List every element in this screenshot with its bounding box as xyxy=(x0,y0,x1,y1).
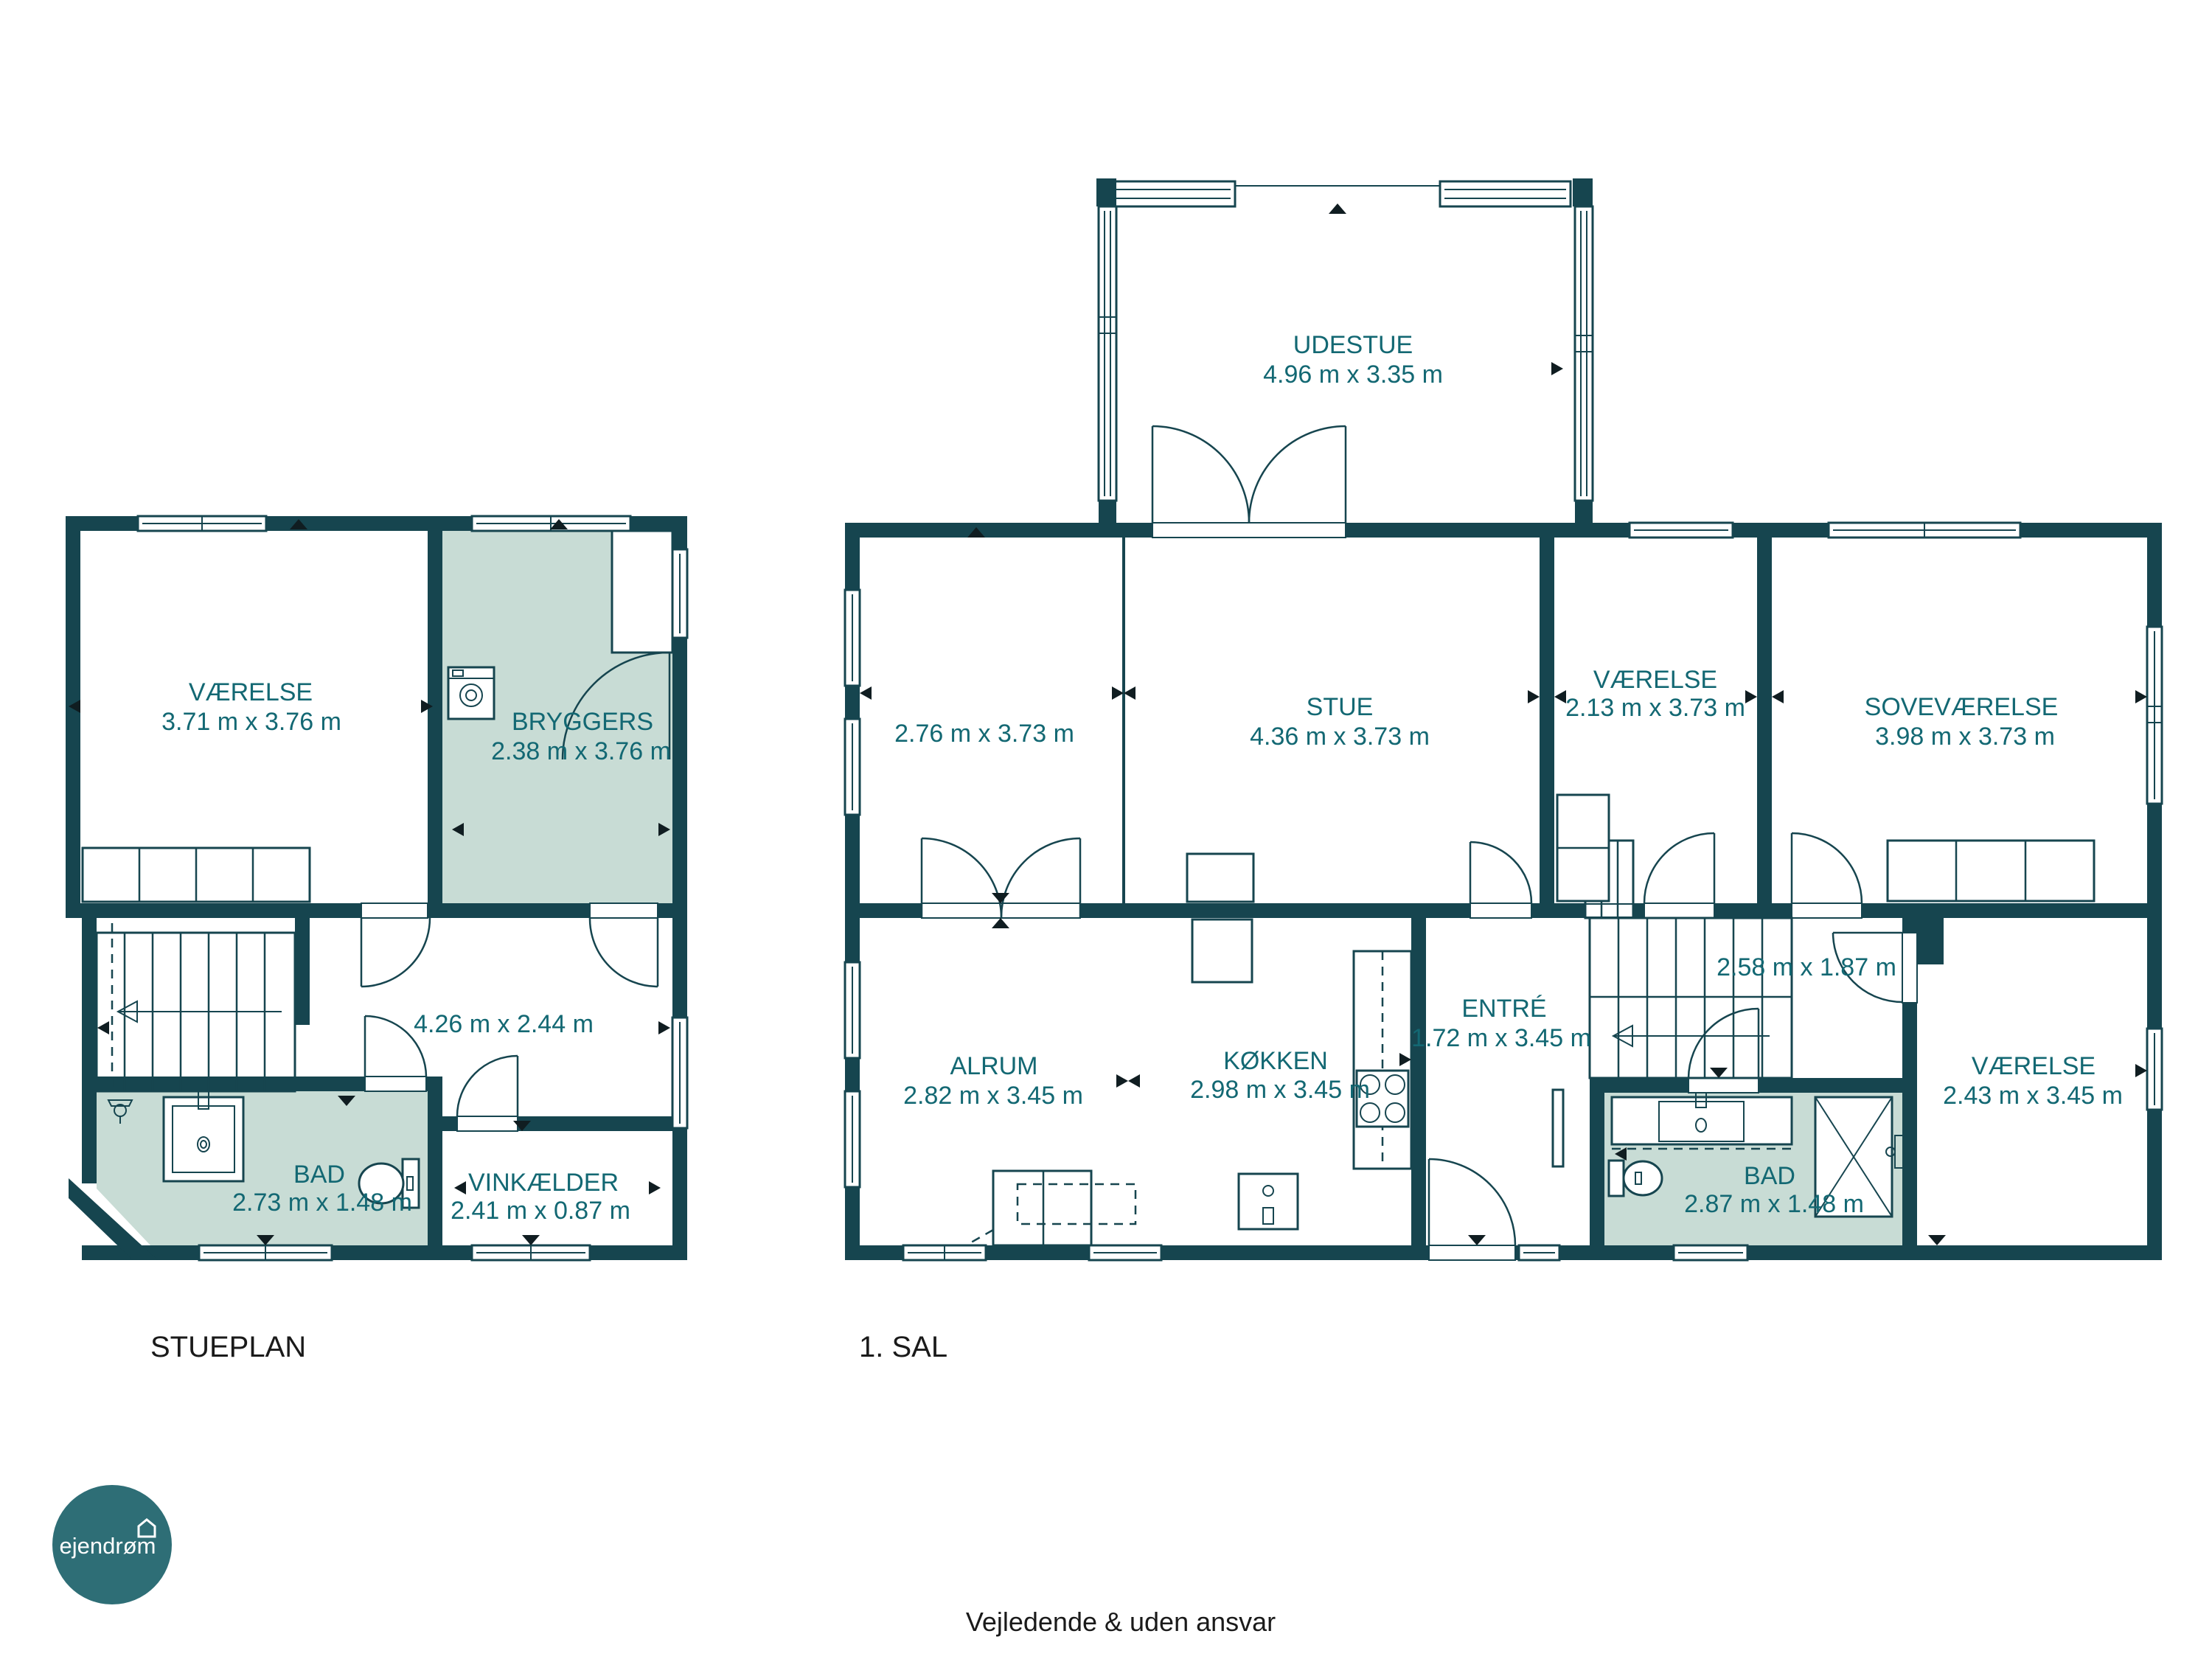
door-leaf-entre xyxy=(1553,1090,1563,1166)
toilet-icon xyxy=(1609,1161,1662,1196)
door-entry xyxy=(1429,1159,1515,1245)
window xyxy=(2147,1029,2162,1110)
window xyxy=(672,1018,687,1128)
room-dims: 2.76 m x 3.73 m xyxy=(894,720,1074,748)
plan-first-floor: UDESTUE 4.96 m x 3.35 m 2.76 m x 3.73 m … xyxy=(845,178,2162,1260)
disclaimer-text: Vejledende & uden ansvar xyxy=(966,1607,1276,1637)
kitchen-base-cabinet xyxy=(966,1171,1135,1245)
window xyxy=(1519,1245,1559,1260)
window xyxy=(1630,523,1733,538)
window xyxy=(472,1245,590,1260)
room-name: SOVEVÆRELSE xyxy=(1865,693,2059,721)
room-name: VÆRELSE xyxy=(1972,1052,2096,1080)
window xyxy=(672,549,687,638)
bath-sink-icon xyxy=(1612,1093,1792,1149)
room-name: UDESTUE xyxy=(1293,331,1413,359)
washing-machine-icon xyxy=(448,667,494,719)
stair-direction-arrow xyxy=(118,1001,282,1022)
closet xyxy=(1557,795,1609,901)
room-dims: 2.38 m x 3.76 m xyxy=(491,737,671,765)
window xyxy=(845,719,860,815)
room-name: KØKKEN xyxy=(1223,1047,1328,1075)
room-dims: 2.98 m x 3.45 m xyxy=(1190,1076,1370,1104)
room-name: VÆRELSE xyxy=(1593,666,1717,694)
stairs-stueplan xyxy=(97,923,295,1091)
room-name: ENTRÉ xyxy=(1461,995,1546,1023)
stair-direction-arrow xyxy=(1613,1026,1770,1046)
room-dims: 2.73 m x 1.48 m xyxy=(232,1189,412,1217)
window xyxy=(845,590,860,686)
room-name: VÆRELSE xyxy=(189,678,313,706)
door-stue xyxy=(1470,842,1531,903)
room-dims: 4.96 m x 3.35 m xyxy=(1263,361,1443,389)
door-bad2 xyxy=(1688,1009,1759,1078)
room-dims: 2.82 m x 3.45 m xyxy=(903,1082,1083,1110)
window xyxy=(845,1091,860,1187)
room-name: BAD xyxy=(293,1161,345,1189)
room-name: BAD xyxy=(1744,1162,1795,1190)
window xyxy=(1674,1245,1747,1260)
plan-title-stueplan: STUEPLAN xyxy=(150,1331,306,1363)
door-vinkaelder xyxy=(457,1056,518,1116)
bryggers-niche xyxy=(612,531,672,653)
room-dims: 2.13 m x 3.73 m xyxy=(1565,694,1745,722)
window xyxy=(138,516,266,531)
room-dims: 2.58 m x 1.87 m xyxy=(1717,953,1896,981)
window xyxy=(199,1245,332,1260)
room-dims: 2.87 m x 1.48 m xyxy=(1684,1190,1864,1218)
window xyxy=(1440,181,1571,206)
plan-stueplan: VÆRELSE 3.71 m x 3.76 m BRYGGERS 2.38 m … xyxy=(66,516,687,1260)
door-sovevaerelse xyxy=(1792,833,1862,903)
floorplan-canvas: VÆRELSE 3.71 m x 3.76 m BRYGGERS 2.38 m … xyxy=(0,0,2212,1659)
door-hall-right xyxy=(590,918,658,987)
room-name: VINKÆLDER xyxy=(468,1169,619,1197)
window xyxy=(1829,523,2020,538)
kitchen-sink-icon xyxy=(1239,1174,1298,1229)
plan-title-first-floor: 1. SAL xyxy=(859,1331,947,1363)
door-vaerelse xyxy=(361,918,430,987)
room-dims: 2.41 m x 0.87 m xyxy=(451,1197,630,1225)
room-dims: 1.72 m x 3.45 m xyxy=(1411,1024,1591,1052)
window xyxy=(1107,181,1235,206)
wardrobe xyxy=(1888,841,2094,901)
window xyxy=(1575,206,1593,501)
room-dims: 3.71 m x 3.76 m xyxy=(161,708,341,736)
window xyxy=(1089,1245,1161,1260)
room-name: BRYGGERS xyxy=(512,708,653,736)
door-vaerelse-213 xyxy=(1644,833,1714,903)
window xyxy=(903,1245,986,1260)
room-name: ALRUM xyxy=(950,1052,1037,1080)
room-dims: 2.43 m x 3.45 m xyxy=(1943,1082,2123,1110)
room-name: STUE xyxy=(1307,693,1374,721)
room-dims: 3.98 m x 3.73 m xyxy=(1875,723,2055,751)
room-dims: 4.26 m x 2.44 m xyxy=(414,1010,594,1038)
window xyxy=(2147,627,2162,804)
double-door-udestue xyxy=(1152,426,1346,523)
window xyxy=(845,962,860,1058)
company-logo: ejendrøm xyxy=(52,1485,172,1604)
wardrobe xyxy=(83,848,310,902)
room-dims: 4.36 m x 3.73 m xyxy=(1250,723,1430,751)
window xyxy=(1099,206,1116,501)
sink-icon xyxy=(164,1091,243,1181)
